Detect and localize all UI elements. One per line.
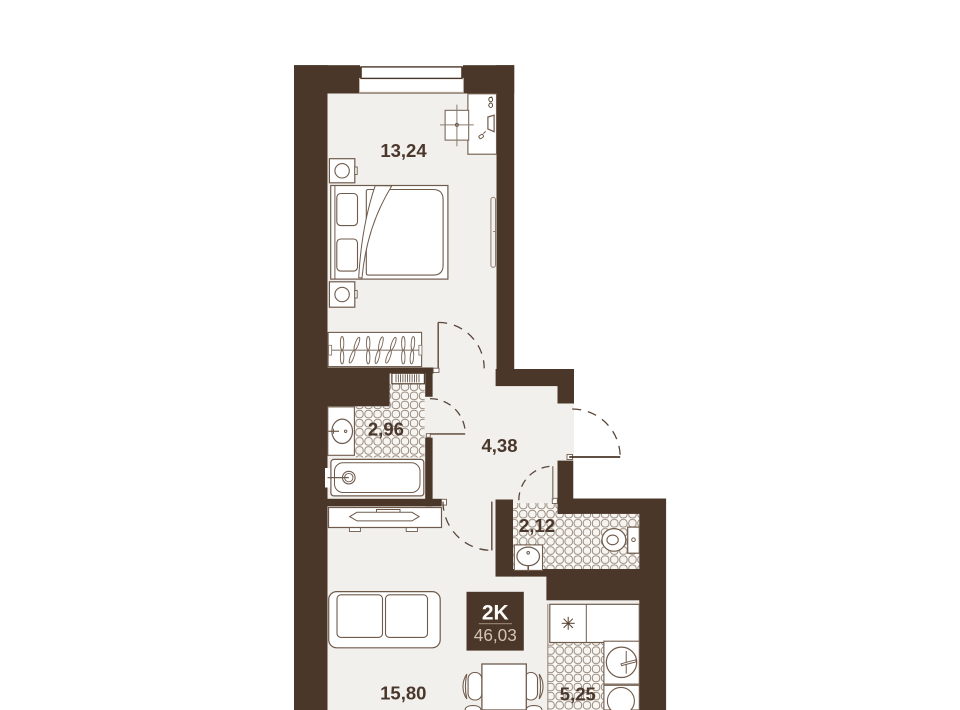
svg-text:2,12: 2,12 bbox=[519, 515, 555, 536]
svg-text:4,38: 4,38 bbox=[481, 435, 517, 456]
svg-text:2,96: 2,96 bbox=[368, 419, 404, 440]
svg-text:2K: 2K bbox=[482, 602, 509, 625]
svg-text:15,80: 15,80 bbox=[380, 683, 426, 704]
svg-text:13,24: 13,24 bbox=[380, 140, 427, 161]
svg-text:5,25: 5,25 bbox=[560, 684, 596, 705]
svg-text:46,03: 46,03 bbox=[474, 625, 517, 645]
